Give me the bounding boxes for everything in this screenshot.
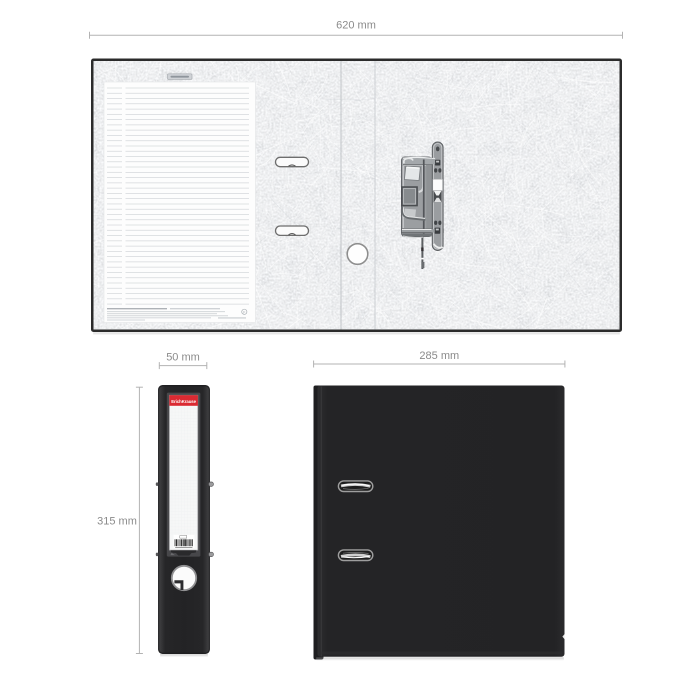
svg-text:ErichKrause: ErichKrause bbox=[171, 399, 196, 404]
svg-text:285 mm: 285 mm bbox=[419, 350, 459, 362]
svg-text:315 mm: 315 mm bbox=[97, 516, 137, 528]
svg-text:620 mm: 620 mm bbox=[336, 20, 376, 32]
svg-text:F: F bbox=[243, 310, 245, 314]
svg-text:50 mm: 50 mm bbox=[166, 352, 200, 364]
